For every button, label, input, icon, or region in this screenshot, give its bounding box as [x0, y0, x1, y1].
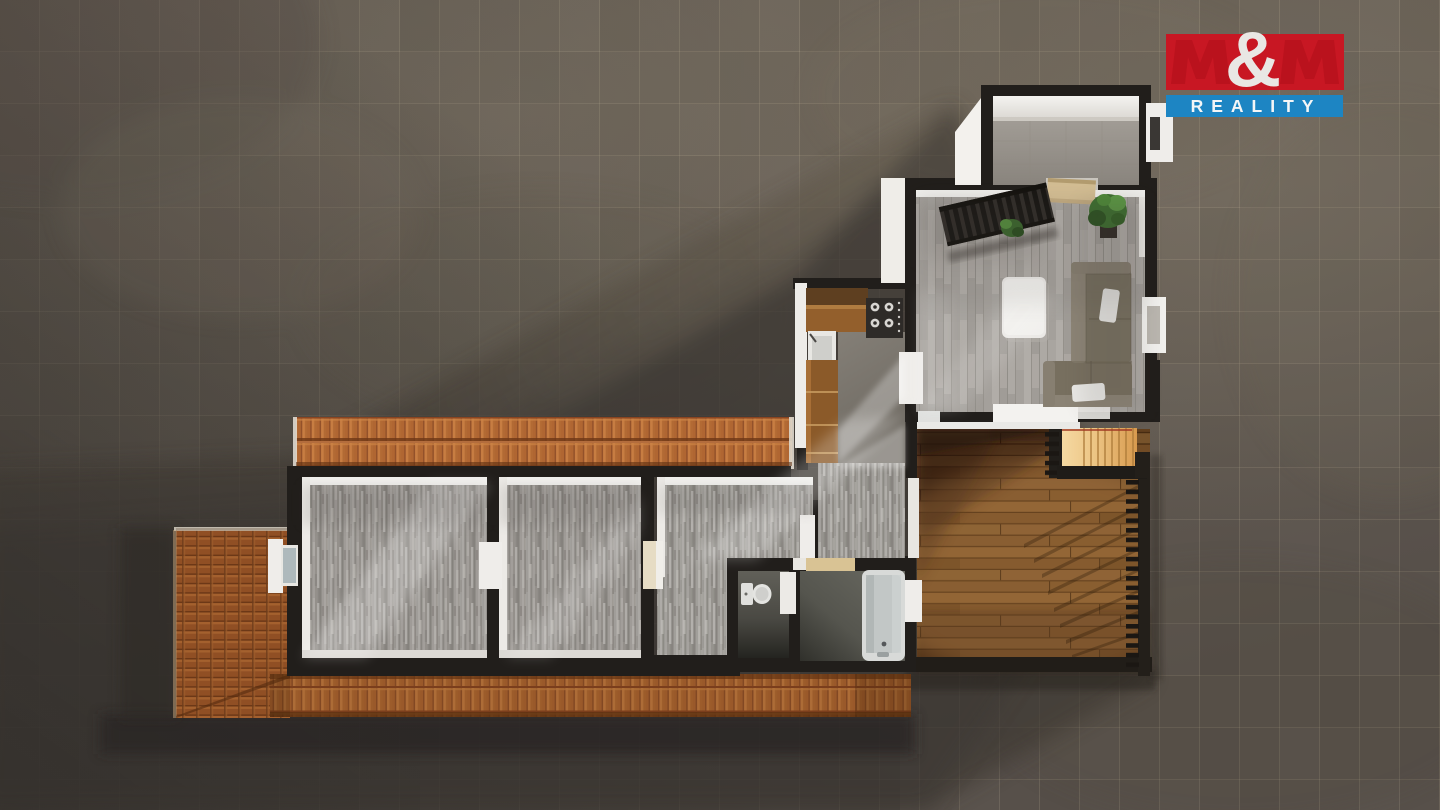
svg-text:REALITY: REALITY	[1191, 96, 1322, 116]
svg-text:&: &	[1225, 15, 1281, 103]
